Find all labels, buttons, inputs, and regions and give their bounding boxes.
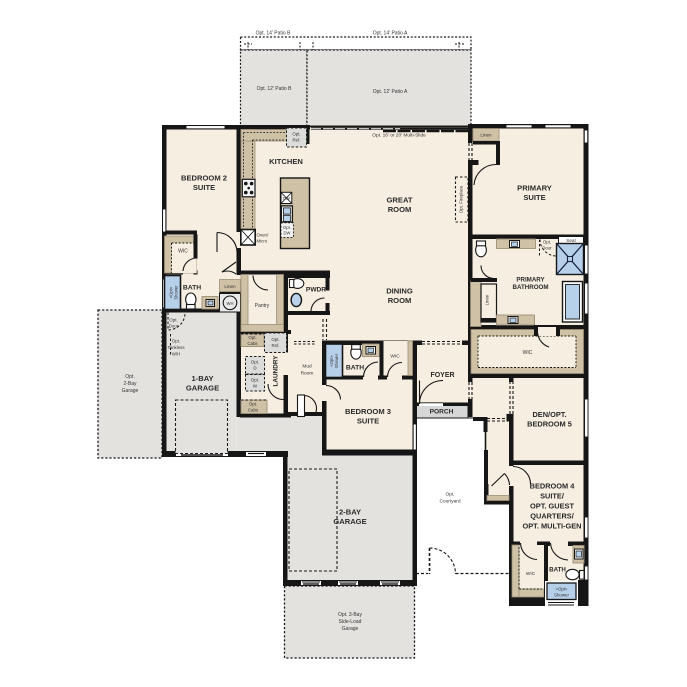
svg-text:Pantry: Pantry: [255, 303, 270, 309]
svg-text:D: D: [253, 366, 256, 371]
svg-text:WH: WH: [227, 301, 234, 306]
svg-text:WIC: WIC: [526, 571, 536, 577]
svg-text:2-BAY: 2-BAY: [339, 508, 361, 517]
svg-text:W/H: W/H: [172, 352, 181, 357]
svg-text:PRIMARY: PRIMARY: [517, 184, 552, 193]
svg-text:QUARTERS/: QUARTERS/: [530, 512, 574, 521]
svg-text:PRIMARY: PRIMARY: [516, 277, 545, 284]
svg-text:SUITE: SUITE: [357, 417, 379, 426]
svg-text:Opt. 12' Patio B: Opt. 12' Patio B: [257, 86, 293, 92]
svg-text:ROOM: ROOM: [388, 205, 412, 214]
svg-text:BATH: BATH: [549, 567, 566, 574]
svg-text:Opt.: Opt.: [249, 402, 257, 407]
svg-text:Ref.: Ref.: [292, 138, 300, 143]
svg-text:Cabs: Cabs: [248, 408, 259, 413]
svg-text:WIC: WIC: [178, 249, 188, 255]
svg-text:Opt. 14' Patio A: Opt. 14' Patio A: [373, 31, 408, 37]
svg-text:PWDR: PWDR: [306, 287, 326, 294]
svg-text:Shower: Shower: [554, 593, 569, 598]
svg-text:GREAT: GREAT: [386, 196, 412, 205]
svg-text:Linen: Linen: [480, 133, 492, 138]
svg-text:Opt.: Opt.: [292, 132, 300, 137]
svg-text:Opt.: Opt.: [445, 492, 454, 498]
svg-text:Opt.: Opt.: [271, 337, 279, 342]
svg-text:1-BAY: 1-BAY: [191, 374, 213, 383]
svg-text:SUITE/: SUITE/: [540, 492, 564, 501]
svg-text:OPT. GUEST: OPT. GUEST: [530, 502, 574, 511]
svg-text:Opt.: Opt.: [251, 360, 259, 365]
svg-text:Opt. Fireplace: Opt. Fireplace: [459, 185, 464, 213]
svg-text:Shower: Shower: [334, 353, 339, 368]
svg-text:DW: DW: [283, 196, 290, 201]
svg-text:Courtyard: Courtyard: [439, 499, 460, 505]
svg-text:Opt. 14' Patio B: Opt. 14' Patio B: [256, 31, 292, 37]
svg-text:Side-Load: Side-Load: [339, 619, 362, 625]
svg-text:Opt.: Opt.: [251, 378, 259, 383]
svg-text:Garage: Garage: [342, 626, 359, 632]
svg-text:Garage: Garage: [122, 388, 139, 394]
svg-text:WIC: WIC: [523, 350, 533, 356]
svg-text:Opt.: Opt.: [169, 318, 177, 323]
svg-text:Opt. 16' or 20' Multi-Slide: Opt. 16' or 20' Multi-Slide: [372, 133, 426, 139]
svg-text:OPT. MULTI-GEN: OPT. MULTI-GEN: [523, 522, 582, 531]
svg-text:Door: Door: [542, 246, 552, 251]
svg-text:Shower: Shower: [174, 285, 179, 300]
svg-text:Opt.: Opt.: [125, 374, 134, 380]
svg-text:Linen: Linen: [224, 284, 236, 289]
svg-text:BATH: BATH: [346, 365, 364, 372]
svg-text:BEDROOM 5: BEDROOM 5: [527, 420, 572, 429]
svg-text:DINING: DINING: [386, 287, 413, 296]
svg-text:Room: Room: [301, 371, 314, 377]
svg-text:Opt.: Opt.: [283, 225, 291, 230]
svg-text:Opt. 3-Bay: Opt. 3-Bay: [338, 612, 362, 618]
svg-text:Opt. 12' Patio A: Opt. 12' Patio A: [373, 89, 408, 95]
svg-text:PORCH: PORCH: [430, 409, 454, 416]
svg-text:GARAGE: GARAGE: [333, 517, 366, 526]
svg-text:Cabs: Cabs: [247, 341, 258, 346]
svg-text:GARAGE: GARAGE: [186, 384, 219, 393]
svg-text:BEDROOM 4: BEDROOM 4: [530, 482, 576, 491]
svg-text:SUITE: SUITE: [523, 193, 545, 202]
svg-text:Opt.: Opt.: [248, 335, 256, 340]
svg-text:FOYER: FOYER: [430, 372, 454, 379]
svg-text:BEDROOM 3: BEDROOM 3: [345, 407, 391, 416]
svg-text:ROOM: ROOM: [388, 296, 412, 305]
svg-text:Micro: Micro: [257, 239, 268, 244]
svg-text:LAUNDRY: LAUNDRY: [273, 355, 280, 387]
svg-text:BATHROOM: BATHROOM: [513, 284, 549, 291]
svg-text:Door: Door: [169, 324, 179, 329]
svg-text:DEN/OPT.: DEN/OPT.: [532, 410, 566, 419]
svg-text:«Opt»: «Opt»: [556, 587, 569, 592]
svg-text:SUITE: SUITE: [193, 183, 215, 192]
svg-text:BATH: BATH: [183, 285, 201, 292]
svg-text:Ref.: Ref.: [271, 343, 279, 348]
svg-text:BEDROOM 2: BEDROOM 2: [181, 174, 227, 183]
svg-text:Opt.: Opt.: [543, 240, 551, 245]
svg-text:Mud: Mud: [302, 364, 312, 370]
svg-text:Linen: Linen: [485, 294, 490, 305]
svg-text:Oven/: Oven/: [257, 233, 269, 238]
svg-text:2-Bay: 2-Bay: [123, 381, 137, 387]
svg-text:WIC: WIC: [390, 354, 400, 360]
svg-text:Opt.: Opt.: [172, 339, 180, 344]
svg-text:DW: DW: [284, 231, 291, 236]
svg-text:KITCHEN: KITCHEN: [269, 157, 303, 166]
svg-text:Seat: Seat: [566, 238, 576, 243]
